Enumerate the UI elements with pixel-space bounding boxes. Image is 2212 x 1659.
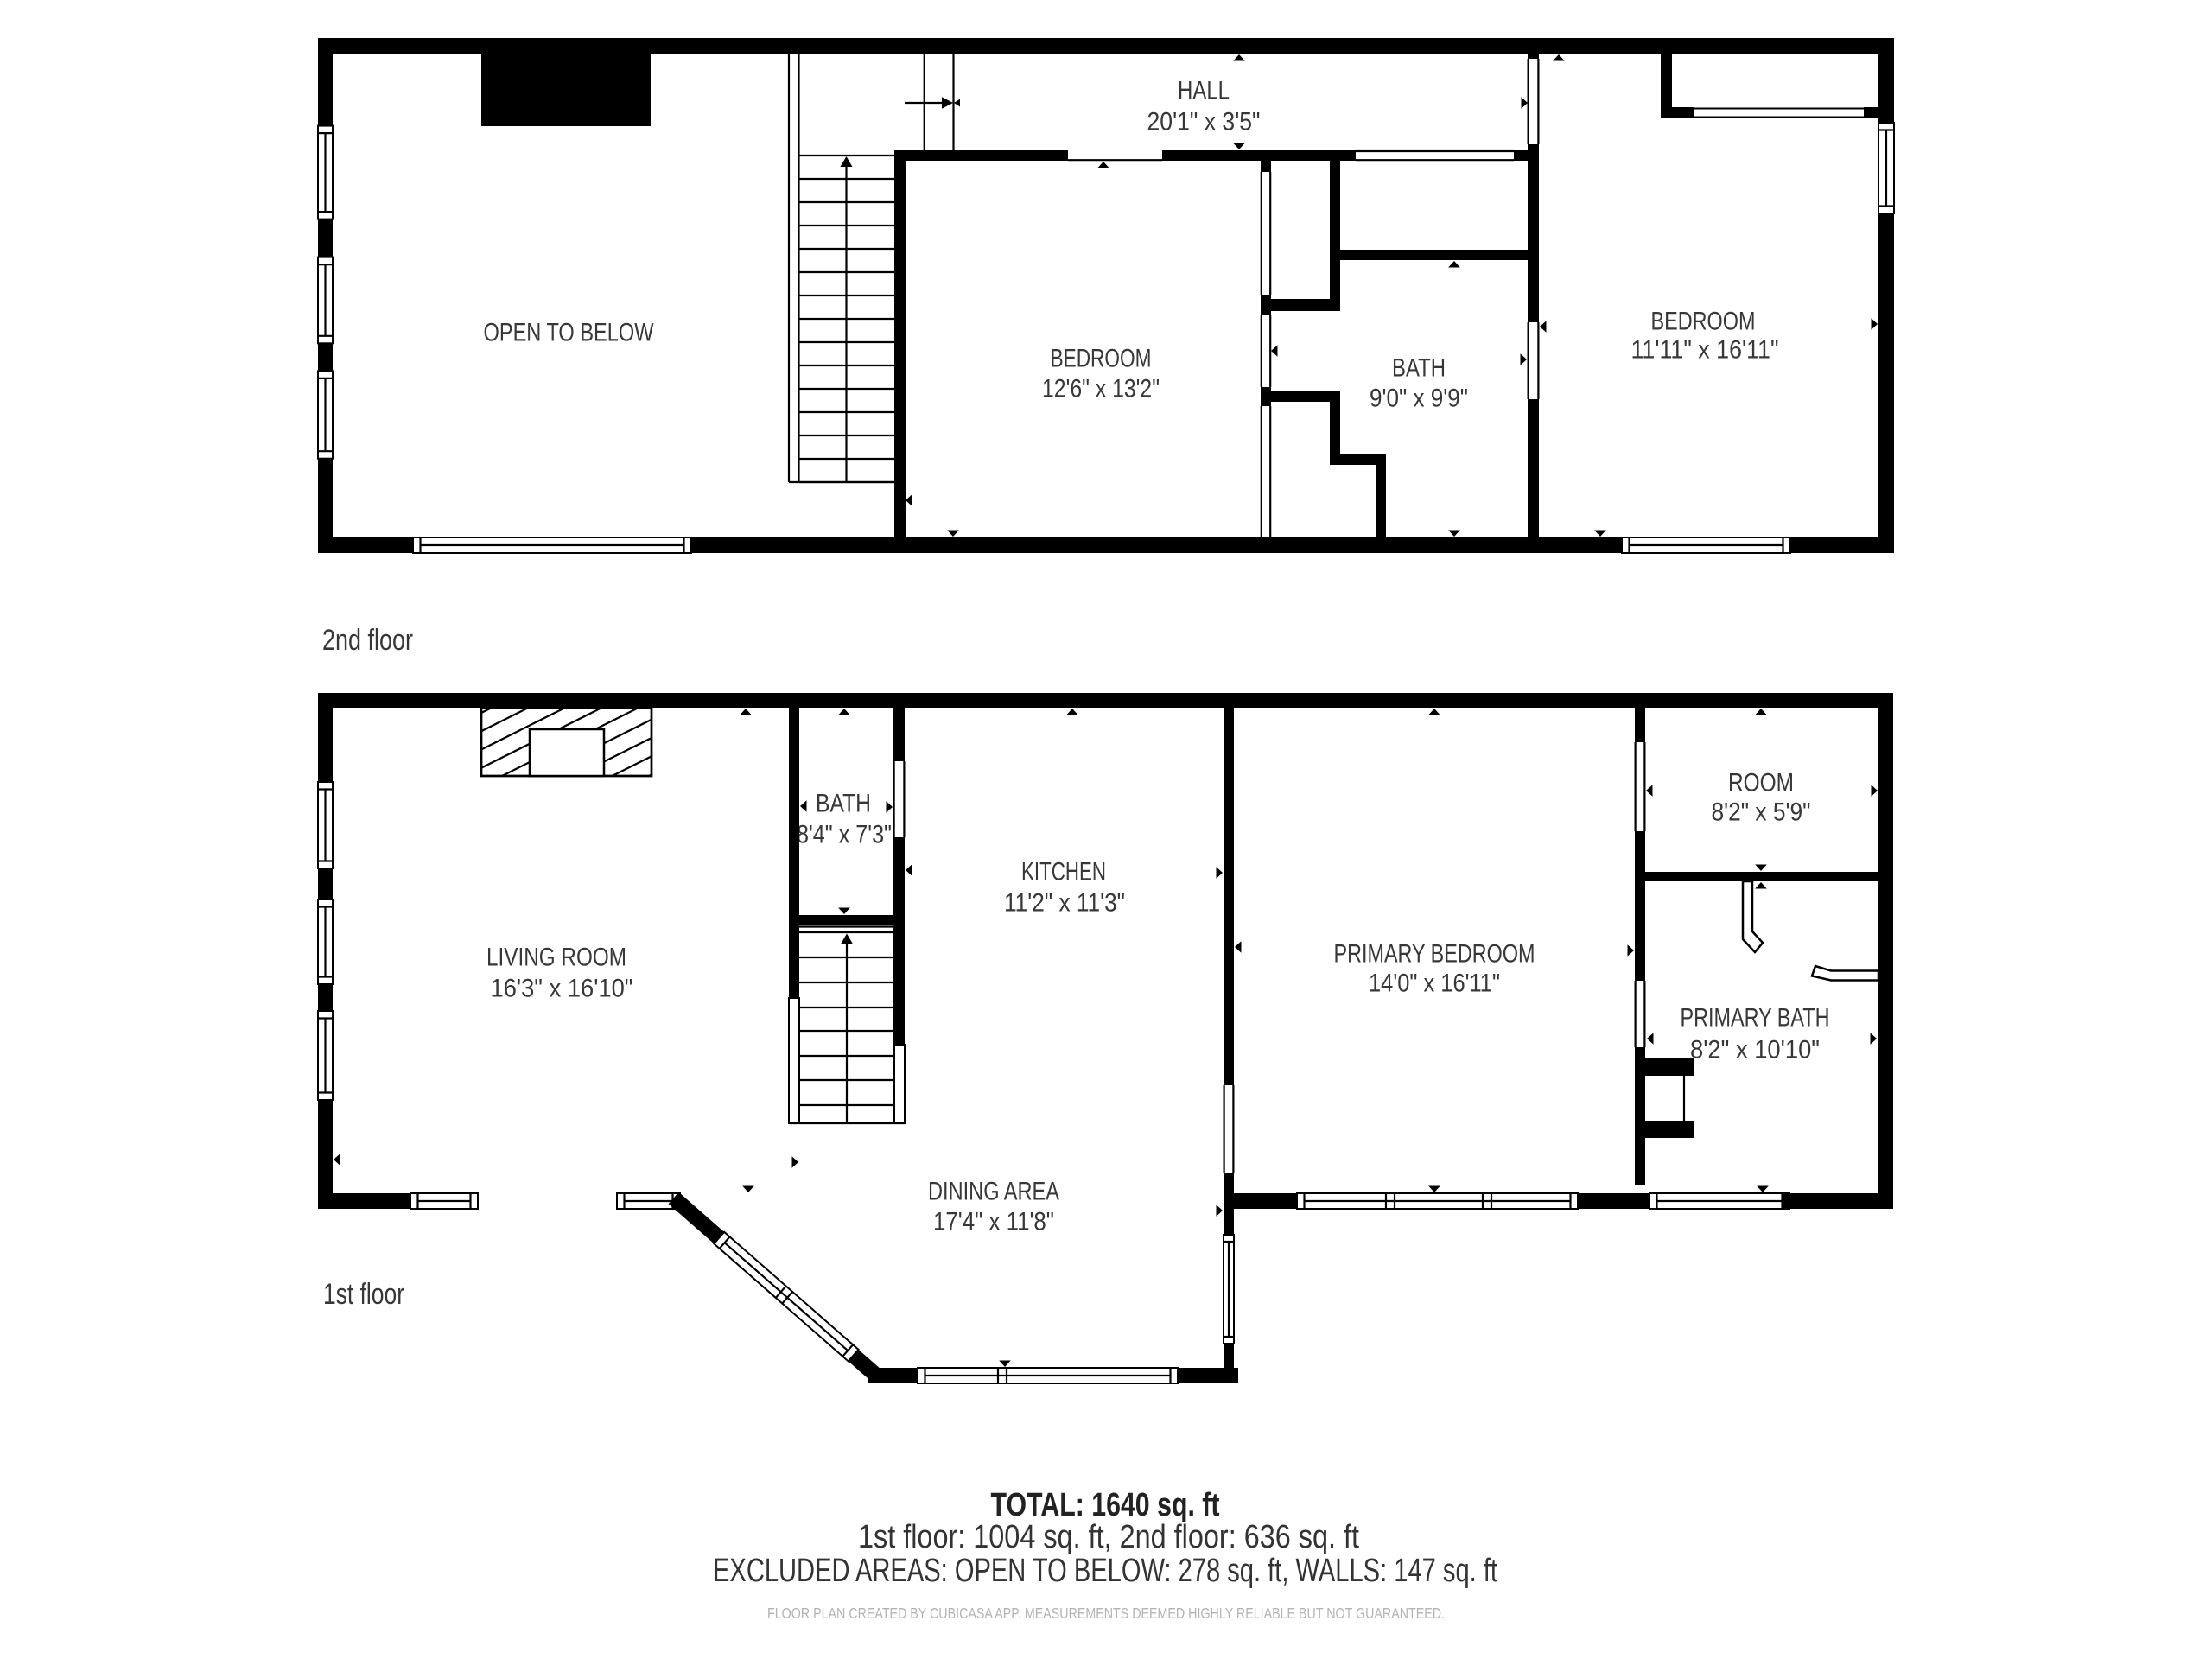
svg-text:DINING AREA: DINING AREA	[928, 1178, 1059, 1206]
svg-text:BATH: BATH	[1392, 354, 1446, 383]
svg-text:14'0" x 16'11": 14'0" x 16'11"	[1369, 969, 1500, 998]
svg-text:BEDROOM: BEDROOM	[1051, 345, 1152, 373]
svg-text:12'6" x 13'2": 12'6" x 13'2"	[1042, 375, 1160, 404]
svg-text:16'3" x 16'10": 16'3" x 16'10"	[491, 975, 633, 1003]
svg-text:EXCLUDED AREAS: OPEN TO BELOW:: EXCLUDED AREAS: OPEN TO BELOW: 278 sq. f…	[713, 1553, 1497, 1589]
svg-text:1st floor: 1st floor	[323, 1278, 404, 1311]
svg-text:1st floor: 1004 sq. ft, 2nd fl: 1st floor: 1004 sq. ft, 2nd floor: 636 s…	[858, 1519, 1359, 1555]
svg-text:OPEN TO BELOW: OPEN TO BELOW	[484, 319, 655, 347]
svg-text:8'4" x 7'3": 8'4" x 7'3"	[797, 821, 892, 849]
svg-text:17'4" x 11'8": 17'4" x 11'8"	[933, 1208, 1054, 1236]
svg-text:2nd floor: 2nd floor	[322, 624, 413, 657]
svg-text:11'2" x 11'3": 11'2" x 11'3"	[1004, 889, 1125, 918]
svg-text:8'2" x 5'9": 8'2" x 5'9"	[1712, 798, 1811, 827]
svg-text:PRIMARY BEDROOM: PRIMARY BEDROOM	[1334, 940, 1535, 969]
svg-text:BEDROOM: BEDROOM	[1651, 308, 1756, 336]
svg-text:11'11" x 16'11": 11'11" x 16'11"	[1631, 336, 1779, 365]
svg-text:FLOOR PLAN CREATED BY CUBICASA: FLOOR PLAN CREATED BY CUBICASA APP. MEAS…	[767, 1605, 1445, 1622]
svg-text:8'2" x 10'10": 8'2" x 10'10"	[1690, 1036, 1820, 1065]
svg-text:9'0" x 9'9": 9'0" x 9'9"	[1370, 385, 1468, 413]
svg-text:KITCHEN: KITCHEN	[1021, 858, 1106, 887]
svg-text:HALL: HALL	[1178, 77, 1230, 105]
svg-text:20'1" x 3'5": 20'1" x 3'5"	[1147, 108, 1261, 137]
svg-text:LIVING ROOM: LIVING ROOM	[486, 944, 626, 972]
svg-text:TOTAL: 1640 sq. ft: TOTAL: 1640 sq. ft	[991, 1487, 1220, 1523]
svg-text:PRIMARY BATH: PRIMARY BATH	[1681, 1004, 1830, 1033]
svg-text:ROOM: ROOM	[1728, 769, 1794, 798]
svg-text:BATH: BATH	[816, 790, 871, 818]
